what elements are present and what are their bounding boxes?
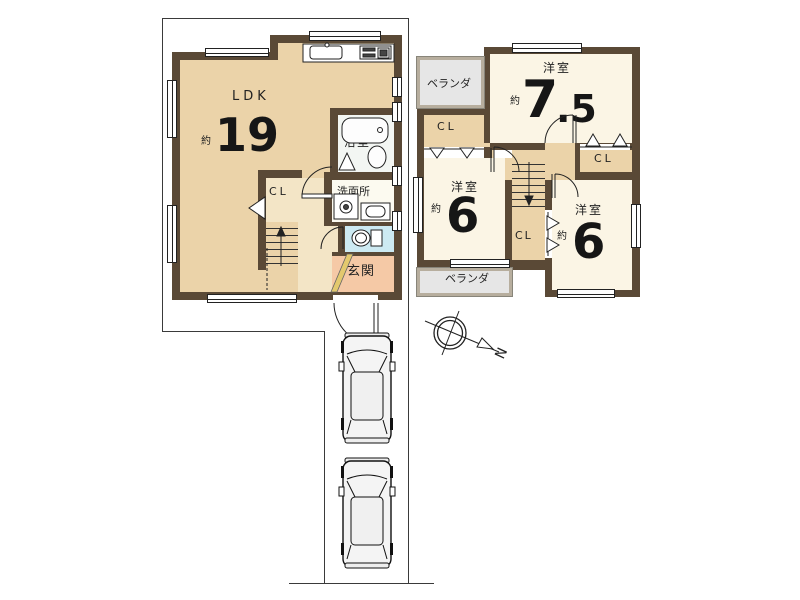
toilet-floor — [345, 226, 394, 252]
fold-opening-closet-top — [424, 147, 484, 158]
room6-left-area: 6 — [446, 192, 479, 240]
veranda-top-label: ベランダ — [427, 78, 471, 89]
window-right-4 — [392, 211, 402, 231]
room6-right-approx: 約 — [557, 232, 567, 242]
car-bottom-icon — [339, 458, 395, 568]
room75-area-main: 7 — [522, 74, 558, 126]
window-kitchen — [309, 31, 381, 41]
wall-room75-bottom — [490, 143, 545, 150]
boundary-mid — [324, 331, 325, 583]
stairs-1f — [266, 222, 298, 270]
window-left-lower — [167, 205, 177, 263]
wall-toilet-left — [338, 226, 345, 252]
veranda-bottom-label: ベランダ — [445, 273, 489, 284]
closet-1f-label: CL — [269, 186, 289, 197]
wall-bath-left — [330, 108, 338, 180]
window-right-1 — [392, 77, 402, 97]
kitchen-floor — [278, 43, 394, 112]
window-top-left — [205, 48, 269, 57]
window-room6r-right — [631, 204, 641, 248]
wall-room6l-door-stub — [484, 147, 492, 158]
room75-approx: 約 — [510, 97, 520, 107]
closet-2f-middle-label: CL — [515, 230, 533, 241]
fold-opening-closet-right — [580, 144, 630, 150]
compass-icon: N — [425, 311, 509, 361]
car-top-icon — [339, 333, 395, 443]
window-room6r-bottom — [557, 289, 615, 298]
boundary-top — [162, 18, 408, 19]
window-right-2 — [392, 102, 402, 122]
wall-wash-left — [324, 172, 332, 226]
door-opening-room6-left — [494, 150, 512, 158]
entrance-label: 玄関 — [347, 265, 375, 278]
wall-toilet-bottom — [332, 252, 394, 256]
ldk-area: 19 — [215, 112, 279, 158]
window-bottom — [207, 294, 297, 303]
ldk-label: LDK — [232, 90, 270, 103]
floor-plan-canvas: LDK 約 19 CL 浴室 洗面所 玄関 洋室 約 7 .5 CL ベランダ … — [0, 0, 800, 600]
closet-2f-right-label: CL — [594, 153, 614, 164]
window-left-upper — [167, 80, 177, 138]
boundary-step — [162, 331, 325, 332]
stairs-2f — [512, 158, 545, 207]
room6-right-area: 6 — [572, 218, 605, 266]
bath-label: 浴室 — [344, 136, 370, 148]
room6-left-approx: 約 — [431, 205, 441, 215]
window-room6l-left — [413, 177, 423, 233]
boundary-left — [162, 18, 163, 332]
compass-north-label: N — [490, 344, 509, 360]
room75-area-fraction: .5 — [556, 90, 597, 128]
boundary-right — [408, 18, 409, 583]
window-room75-top — [512, 43, 582, 53]
wall-stairs-left — [258, 178, 266, 270]
window-right-3 — [392, 166, 402, 186]
ldk-approx: 約 — [201, 137, 211, 147]
washroom-label: 洗面所 — [337, 186, 370, 197]
boundary-bottom — [289, 583, 434, 584]
door-opening-room6-right — [548, 172, 573, 180]
wall-closet-1f-top — [258, 170, 302, 178]
entrance-door-opening — [333, 295, 378, 303]
window-room6l-bottom — [450, 259, 510, 268]
fold-opening-closet-middle — [545, 210, 552, 258]
closet-2f-top-label: CL — [437, 121, 457, 132]
